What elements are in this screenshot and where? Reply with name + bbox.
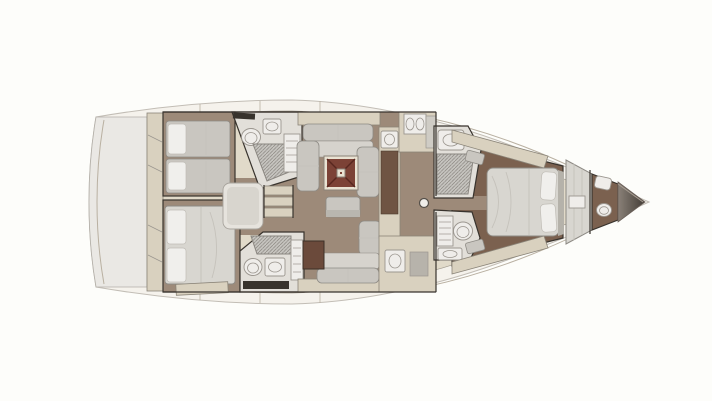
yacht-floor-plan bbox=[0, 0, 712, 401]
locker-port bbox=[298, 112, 380, 125]
pillow bbox=[168, 124, 186, 154]
swim-steps bbox=[147, 113, 163, 291]
pillow bbox=[167, 210, 186, 244]
headboard bbox=[558, 170, 564, 236]
bow-wardrobe bbox=[566, 160, 592, 244]
toilet bbox=[242, 129, 261, 146]
sink bbox=[438, 248, 462, 260]
mast-post bbox=[420, 199, 429, 208]
aft-cabin-port bbox=[163, 112, 235, 196]
galley-appliance bbox=[385, 250, 405, 272]
bow-head bbox=[592, 174, 618, 230]
sofa-starboard-seat bbox=[317, 253, 379, 269]
head-door bbox=[243, 281, 289, 289]
shower-grate bbox=[251, 236, 291, 254]
head-door bbox=[233, 112, 255, 119]
salon-table bbox=[324, 156, 358, 190]
galley-counter-dark bbox=[381, 151, 398, 214]
head-cabinet bbox=[291, 240, 303, 280]
head-cabinet bbox=[437, 216, 453, 246]
galley-sink-double bbox=[404, 114, 426, 134]
nav-seat-cushion bbox=[227, 187, 259, 225]
pillow bbox=[167, 248, 186, 282]
galley-sink bbox=[381, 131, 398, 148]
companionway-step bbox=[264, 186, 293, 195]
transom-platform bbox=[89, 117, 147, 287]
wardrobe-door bbox=[569, 196, 585, 208]
pillow bbox=[540, 172, 557, 201]
floor-plan-drawing bbox=[0, 0, 712, 401]
chart-cabinet bbox=[303, 241, 324, 269]
berth-bench bbox=[176, 282, 229, 296]
coffee-bench-edge bbox=[326, 210, 360, 217]
companionway-step bbox=[264, 197, 293, 206]
companionway-step bbox=[264, 208, 293, 217]
anchor-locker bbox=[618, 182, 645, 222]
sink bbox=[265, 258, 285, 276]
pillow bbox=[540, 203, 557, 232]
pillow bbox=[168, 162, 186, 190]
stove bbox=[410, 252, 428, 276]
